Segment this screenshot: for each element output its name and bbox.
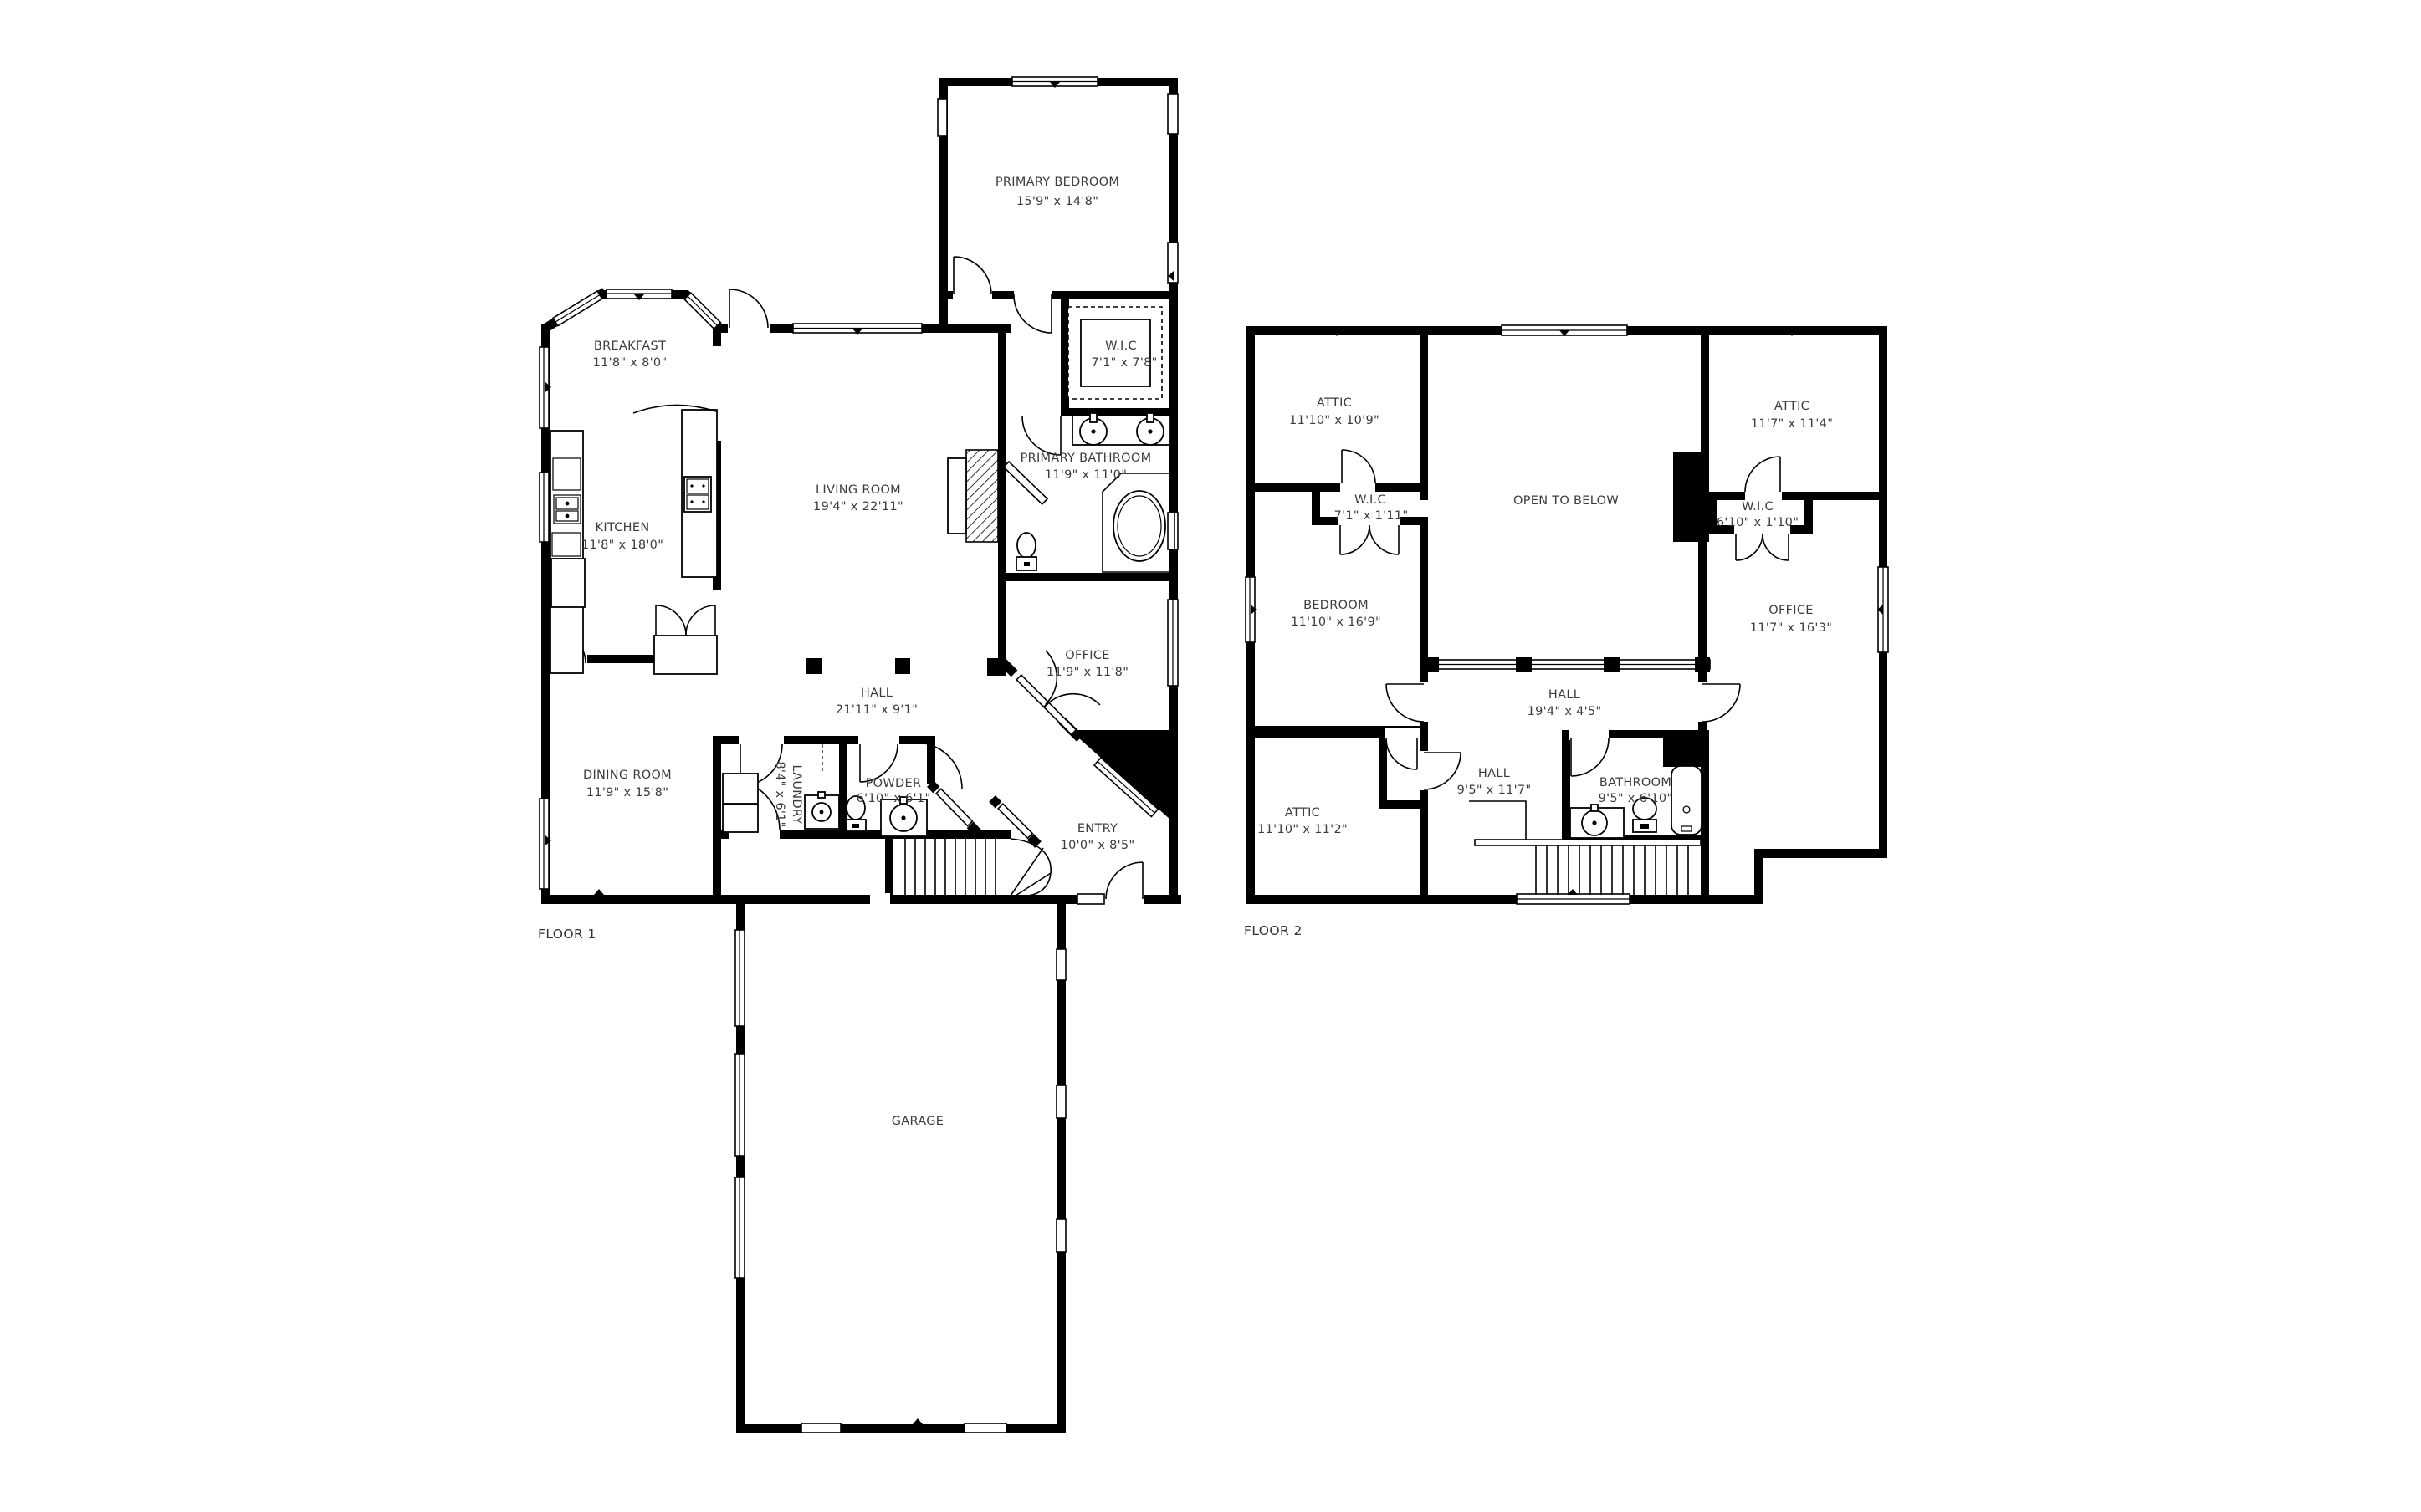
floor2-plan: ATTIC 11'10" x 10'9" OPEN TO BELOW ATTIC…: [1244, 325, 1888, 938]
room-label-hall-floor1: HALL 21'11" x 9'1": [836, 687, 918, 717]
room-name: BREAKFAST: [594, 340, 666, 353]
room-dims: 9'5" x 6'10": [1599, 792, 1673, 805]
floor2-labels: ATTIC 11'10" x 10'9" OPEN TO BELOW ATTIC…: [1257, 396, 1833, 836]
room-dims: 11'10" x 11'2": [1257, 823, 1348, 836]
room-label-open-to-below: OPEN TO BELOW: [1513, 494, 1619, 508]
room-dims: 11'10" x 16'9": [1291, 616, 1381, 629]
room-name: LAUNDRY: [790, 764, 803, 824]
floorplan-canvas: PRIMARY BEDROOM 15'9" x 14'8" W.I.C 7'1"…: [0, 0, 2421, 1512]
room-label-attic-bottom-left: ATTIC 11'10" x 11'2": [1257, 806, 1348, 836]
room-name: ENTRY: [1077, 822, 1118, 835]
room-name: ATTIC: [1774, 400, 1809, 413]
room-name: W.I.C: [1354, 493, 1386, 507]
room-label-hall-lower: HALL 9'5" x 11'7": [1457, 767, 1532, 797]
room-name: W.I.C: [1105, 340, 1137, 353]
room-name: PRIMARY BATHROOM: [1021, 452, 1152, 465]
room-label-powder: POWDER 6'10" x 6'1": [857, 777, 931, 805]
room-name: GARAGE: [892, 1115, 944, 1128]
room-name: LIVING ROOM: [816, 483, 901, 497]
room-dims: 9'5" x 11'7": [1457, 784, 1532, 797]
room-name: OPEN TO BELOW: [1513, 494, 1619, 508]
room-dims: 11'9" x 15'8": [586, 786, 668, 799]
room-label-garage: GARAGE: [892, 1115, 944, 1128]
room-dims: 11'8" x 8'0": [593, 356, 668, 370]
room-label-dining-room: DINING ROOM 11'9" x 15'8": [583, 769, 672, 799]
room-label-breakfast: BREAKFAST 11'8" x 8'0": [593, 340, 668, 370]
room-name: ATTIC: [1317, 396, 1352, 410]
room-label-kitchen: KITCHEN 11'8" x 18'0": [581, 521, 663, 552]
room-name: HALL: [861, 687, 893, 700]
room-label-bathroom: BATHROOM 9'5" x 6'10": [1599, 776, 1673, 805]
room-label-primary-bathroom: PRIMARY BATHROOM 11'9" x 11'0": [1021, 452, 1152, 482]
room-dims: 11'7" x 11'4": [1751, 417, 1833, 431]
room-label-attic-top-right: ATTIC 11'7" x 11'4": [1751, 400, 1833, 431]
room-name: HALL: [1548, 688, 1580, 702]
room-name: DINING ROOM: [583, 769, 672, 782]
room-dims: 11'10" x 10'9": [1289, 414, 1379, 427]
room-name: POWDER: [866, 777, 922, 790]
room-label-entry: ENTRY 10'0" x 8'5": [1061, 822, 1135, 852]
room-dims: 19'4" x 22'11": [813, 500, 903, 513]
floorplan-svg: PRIMARY BEDROOM 15'9" x 14'8" W.I.C 7'1"…: [0, 0, 2421, 1512]
room-label-wic-left: W.I.C 7'1" x 1'11": [1334, 493, 1409, 523]
room-label-attic-top-left: ATTIC 11'10" x 10'9": [1289, 396, 1379, 427]
floor1-plan: PRIMARY BEDROOM 15'9" x 14'8" W.I.C 7'1"…: [538, 77, 1181, 1433]
floor1-windows: [540, 77, 1178, 1433]
room-dims: 6'10" x 1'10": [1717, 516, 1799, 529]
room-dims: 11'7" x 16'3": [1750, 621, 1832, 635]
room-dims: 19'4" x 4'5": [1528, 705, 1602, 718]
room-dims: 7'1" x 7'8": [1091, 356, 1157, 370]
room-label-living-room: LIVING ROOM 19'4" x 22'11": [813, 483, 903, 513]
room-dims: 11'8" x 18'0": [581, 539, 663, 552]
room-label-office-floor1: OFFICE 11'9" x 11'8": [1047, 649, 1129, 679]
room-dims: 6'10" x 6'1": [857, 792, 931, 805]
room-name: ATTIC: [1285, 806, 1320, 820]
room-dims: 15'9" x 14'8": [1016, 195, 1098, 208]
room-label-laundry: LAUNDRY 8'4" x 6'1": [773, 761, 803, 827]
floor2-railing: [1422, 657, 1710, 672]
room-name: HALL: [1478, 767, 1510, 780]
room-name: W.I.C: [1742, 500, 1774, 513]
floor1-walls: [541, 78, 1181, 1433]
room-name: KITCHEN: [596, 521, 650, 534]
room-name: BATHROOM: [1599, 776, 1671, 789]
room-name: OFFICE: [1768, 604, 1813, 617]
room-label-primary-bedroom: PRIMARY BEDROOM 15'9" x 14'8": [996, 176, 1119, 208]
room-name: OFFICE: [1065, 649, 1109, 662]
room-dims: 21'11" x 9'1": [836, 703, 918, 717]
floor2-title: FLOOR 2: [1244, 923, 1303, 938]
room-name: BEDROOM: [1303, 599, 1369, 612]
room-name: PRIMARY BEDROOM: [996, 176, 1119, 189]
room-dims: 11'9" x 11'8": [1047, 666, 1129, 679]
room-label-wic-right: W.I.C 6'10" x 1'10": [1717, 500, 1799, 529]
room-dims: 11'9" x 11'0": [1045, 468, 1127, 482]
floor1-title: FLOOR 1: [538, 927, 596, 942]
room-dims: 7'1" x 1'11": [1334, 509, 1409, 523]
room-label-bedroom: BEDROOM 11'10" x 16'9": [1291, 599, 1381, 629]
room-dims: 8'4" x 6'1": [773, 761, 786, 827]
room-dims: 10'0" x 8'5": [1061, 839, 1135, 852]
room-label-hall-upper: HALL 19'4" x 4'5": [1528, 688, 1602, 718]
room-label-office-floor2: OFFICE 11'7" x 16'3": [1750, 604, 1832, 635]
